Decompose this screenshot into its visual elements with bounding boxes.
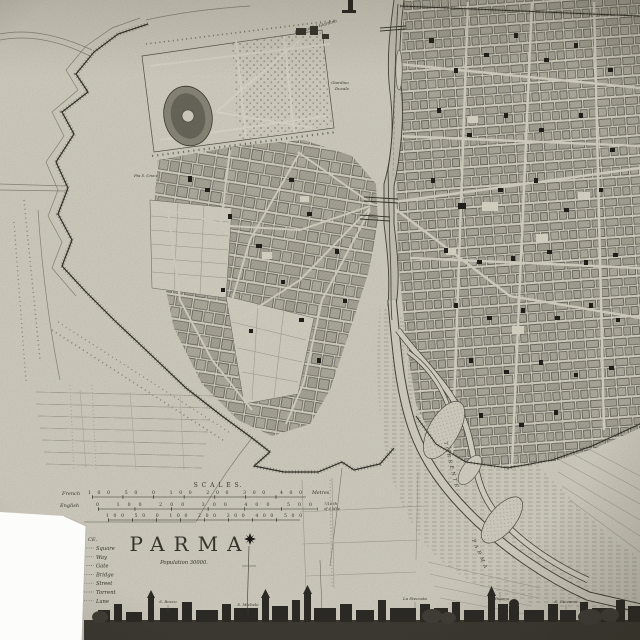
- photo-grain: [0, 0, 640, 640]
- parma-map-svg: S C A L E S. French 100 50 0 100 200 300…: [0, 0, 640, 640]
- photo-background-corner: [0, 512, 86, 640]
- antique-map-photo: S C A L E S. French 100 50 0 100 200 300…: [0, 0, 640, 640]
